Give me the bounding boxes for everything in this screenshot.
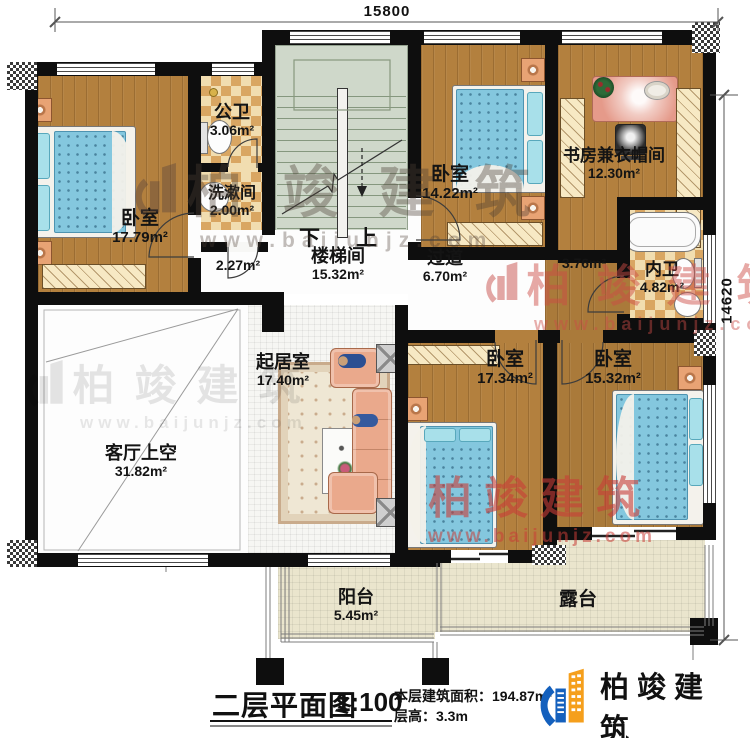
room-area: 31.82m²	[98, 464, 184, 479]
room-area: 17.79m²	[105, 230, 175, 247]
dimension-right: 14620	[719, 271, 736, 331]
room-area: 17.34m²	[468, 371, 542, 388]
building-area-line: 本层建筑面积：194.87m²	[394, 686, 552, 706]
room-label-study: 书房兼衣帽间 12.30m²	[552, 147, 676, 181]
company-logo-icon	[534, 664, 592, 730]
room-area: 5.45m²	[320, 608, 392, 623]
room-label-hallway: 过道 6.70m²	[413, 249, 477, 284]
room-name: 起居室	[245, 353, 321, 373]
room-label-bedroom-bm: 卧室 17.34m²	[468, 350, 542, 387]
area-value: 2.27m²	[206, 258, 270, 273]
stairs-down-label: 下	[299, 222, 320, 252]
stair-arrow	[357, 186, 367, 197]
room-label-stairwell: 楼梯间 15.32m²	[300, 247, 376, 282]
room-name: 卧室	[576, 350, 650, 371]
sliding-door-lines	[451, 531, 676, 559]
room-area: 14.22m²	[410, 186, 490, 203]
floor-plan-canvas: 卧室 17.79m² 公卫 3.06m² 洗漱间 2.00m² 楼梯间 15.3…	[0, 0, 750, 738]
room-label-public-bath: 公卫 3.06m²	[201, 103, 263, 138]
room-label-living-void: 客厅上空 31.82m²	[98, 444, 184, 479]
room-label-bedroom-br: 卧室 15.32m²	[576, 350, 650, 387]
room-name: 卧室	[410, 165, 490, 186]
room-name: 书房兼衣帽间	[552, 147, 676, 166]
room-name: 内卫	[631, 261, 693, 280]
room-name: 公卫	[201, 103, 263, 123]
area-label-corridor: 3.76m²	[552, 256, 616, 271]
room-label-bedroom-tm: 卧室 14.22m²	[410, 165, 490, 202]
dimension-top: 15800	[352, 3, 422, 20]
room-name: 露台	[545, 590, 611, 611]
area-label-hall: 2.27m²	[206, 258, 270, 273]
company-logo-block: 柏竣建筑 www.baijunjz.com	[534, 664, 744, 734]
room-area: 2.00m²	[198, 203, 266, 218]
room-name: 客厅上空	[98, 444, 184, 464]
room-name: 卧室	[468, 350, 542, 371]
room-label-balcony: 阳台 5.45m²	[320, 588, 392, 623]
room-area: 3.06m²	[201, 123, 263, 138]
stair-detail	[282, 60, 402, 214]
dimension-lines	[50, 8, 738, 645]
room-area: 15.32m²	[300, 267, 376, 282]
room-area: 4.82m²	[631, 280, 693, 295]
stairs-up-label: 上	[356, 222, 377, 252]
room-area: 17.40m²	[245, 373, 321, 388]
room-name: 洗漱间	[198, 185, 266, 203]
void-linework	[44, 309, 240, 551]
room-label-bedroom-tl: 卧室 17.79m²	[105, 209, 175, 246]
room-name: 卧室	[105, 209, 175, 230]
room-label-washroom: 洗漱间 2.00m²	[198, 185, 266, 218]
company-name: 柏竣建筑	[600, 664, 744, 738]
area-value: 3.76m²	[552, 256, 616, 271]
room-label-master-bath: 内卫 4.82m²	[631, 261, 693, 295]
railings	[166, 545, 713, 660]
room-name: 过道	[413, 249, 477, 269]
room-area: 6.70m²	[413, 269, 477, 284]
room-area: 12.30m²	[552, 166, 676, 181]
room-name: 阳台	[320, 588, 392, 608]
room-label-terrace: 露台	[545, 590, 611, 611]
room-label-family-room: 起居室 17.40m²	[245, 353, 321, 388]
room-area: 15.32m²	[576, 371, 650, 388]
floor-height-line: 层高：3.3m	[394, 706, 468, 726]
drawing-scale: 1:100	[336, 687, 403, 718]
